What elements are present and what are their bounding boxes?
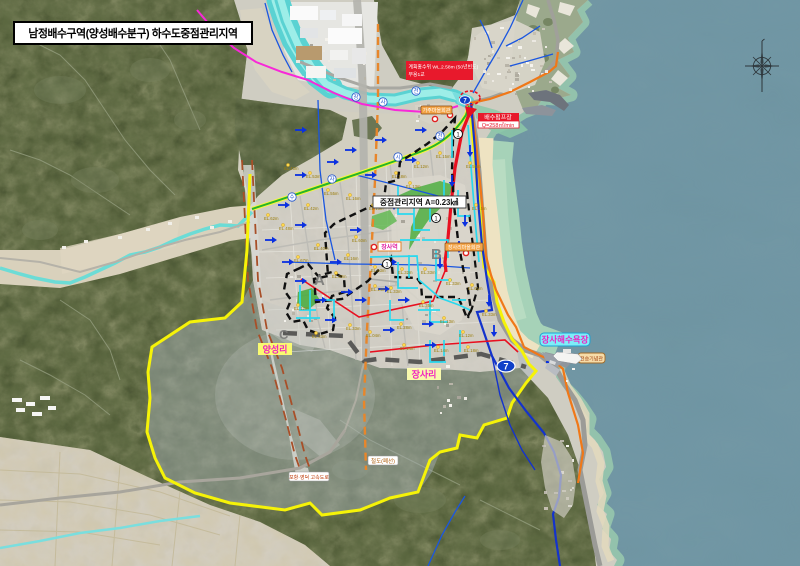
svg-text:EL.53m: EL.53m	[306, 174, 321, 179]
svg-text:EL.33m: EL.33m	[387, 289, 402, 294]
svg-text:EL.33m: EL.33m	[421, 270, 436, 275]
svg-text:장사리: 장사리	[412, 369, 437, 380]
svg-text:EL.48m: EL.48m	[279, 226, 294, 231]
svg-text:EL.04m: EL.04m	[366, 333, 381, 338]
svg-text:EL.63m: EL.63m	[371, 268, 386, 273]
svg-text:중점관리지역 A=0.23㎢: 중점관리지역 A=0.23㎢	[380, 197, 459, 207]
svg-text:Q=258㎥/min: Q=258㎥/min	[482, 121, 515, 129]
svg-text:장사역: 장사역	[381, 243, 398, 251]
svg-text:시: 시	[395, 155, 400, 161]
svg-text:B: B	[431, 246, 442, 263]
svg-text:EL.13m: EL.13m	[406, 184, 421, 189]
svg-text:장사해수욕장: 장사해수욕장	[542, 335, 589, 345]
svg-text:EL.33m: EL.33m	[446, 281, 461, 286]
svg-text:EL.15m: EL.15m	[436, 154, 451, 159]
svg-text:EL.33m: EL.33m	[482, 312, 497, 317]
svg-text:EL.30m: EL.30m	[332, 274, 347, 279]
svg-text:EL.35m: EL.35m	[419, 303, 434, 308]
svg-text:EL.14m: EL.14m	[434, 348, 449, 353]
svg-text:EL.60m: EL.60m	[352, 238, 367, 243]
svg-text:EL.18m: EL.18m	[464, 348, 479, 353]
svg-text:천: 천	[437, 132, 442, 140]
svg-text:EL.14m: EL.14m	[400, 346, 415, 351]
svg-text:EL.32m: EL.32m	[398, 270, 413, 275]
svg-text:장사리마을회관: 장사리마을회관	[448, 244, 481, 251]
svg-text:포항·영덕 고속도로: 포항·영덕 고속도로	[289, 474, 329, 481]
svg-text:EL.67m: EL.67m	[294, 258, 309, 263]
svg-text:A: A	[314, 272, 325, 289]
svg-text:C: C	[279, 327, 289, 342]
svg-text:EL.62m: EL.62m	[264, 216, 279, 221]
svg-text:EL.28m: EL.28m	[397, 325, 412, 330]
svg-text:EL.33m: EL.33m	[312, 334, 327, 339]
svg-text:양성리: 양성리	[263, 344, 288, 355]
svg-text:EL.16m: EL.16m	[344, 256, 359, 261]
svg-text:EL.40m: EL.40m	[314, 246, 329, 251]
svg-text:EL.15m: EL.15m	[472, 206, 487, 211]
svg-text:장: 장	[353, 94, 358, 101]
svg-text:EL.14m: EL.14m	[371, 287, 386, 292]
svg-text:EL.55m: EL.55m	[324, 191, 339, 196]
svg-text:EL.12m: EL.12m	[459, 333, 474, 338]
svg-text:배수펌프장: 배수펌프장	[484, 114, 512, 122]
svg-text:천: 천	[413, 87, 418, 95]
svg-text:사: 사	[380, 98, 385, 106]
svg-text:자: 자	[329, 175, 334, 183]
svg-text:전승기념관: 전승기념관	[580, 356, 603, 363]
svg-text:EL.42m: EL.42m	[304, 206, 319, 211]
svg-text:수: 수	[289, 194, 294, 201]
svg-text:7: 7	[503, 362, 508, 372]
svg-text:EL.12m: EL.12m	[414, 164, 429, 169]
svg-text:계획홍수위 WL.2.58m (50년빈도): 계획홍수위 WL.2.58m (50년빈도)	[409, 64, 479, 71]
svg-text:부용1교: 부용1교	[409, 72, 426, 78]
svg-text:남정배수구역(양성배수분구) 하수도중점관리지역: 남정배수구역(양성배수분구) 하수도중점관리지역	[28, 26, 237, 40]
svg-text:EL.18m: EL.18m	[392, 174, 407, 179]
svg-text:EL.33m: EL.33m	[346, 326, 361, 331]
svg-text:EL.13m: EL.13m	[440, 319, 455, 324]
svg-text:EL.16m: EL.16m	[346, 196, 361, 201]
svg-text:가주마을회관: 가주마을회관	[423, 107, 451, 114]
svg-text:EL.61m: EL.61m	[468, 286, 483, 291]
svg-text:철도(폐선): 철도(폐선)	[371, 457, 395, 465]
svg-text:EL.55m: EL.55m	[466, 164, 481, 169]
svg-text:EL.43m: EL.43m	[284, 166, 299, 171]
svg-text:EL.12m: EL.12m	[294, 306, 309, 311]
